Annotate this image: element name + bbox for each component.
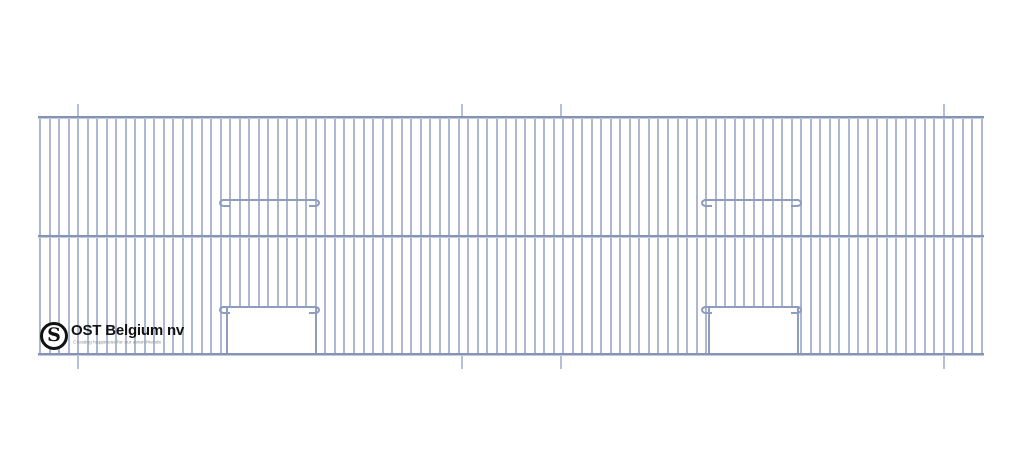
door-hook-wire bbox=[704, 306, 799, 308]
fold-mark-bottom bbox=[461, 356, 463, 369]
door-hook-right-curl bbox=[791, 306, 802, 314]
door-hook-wire bbox=[222, 199, 317, 201]
door-hook-left-curl bbox=[219, 306, 230, 314]
logo-monogram: S bbox=[47, 326, 61, 345]
company-logo: S OST Belgium nv Creating happiness for … bbox=[40, 322, 215, 350]
logo-monogram-ring: S bbox=[40, 322, 68, 350]
fold-mark-top bbox=[943, 104, 945, 116]
fold-mark-bottom bbox=[943, 356, 945, 369]
fold-mark-bottom bbox=[560, 356, 562, 369]
door-hook-right-curl bbox=[309, 306, 320, 314]
drawing-page: S OST Belgium nv Creating happiness for … bbox=[0, 0, 1024, 473]
door-opening bbox=[229, 308, 314, 353]
door-hook-left-curl bbox=[701, 199, 712, 207]
fold-mark-top bbox=[560, 104, 562, 116]
fold-mark-top bbox=[461, 104, 463, 116]
door-hook-right-curl bbox=[791, 199, 802, 207]
door-hook-right-curl bbox=[309, 199, 320, 207]
door-hook-wire bbox=[704, 199, 799, 201]
middle-rail bbox=[38, 235, 984, 238]
bottom-rail bbox=[38, 353, 984, 356]
door-hook-left-curl bbox=[701, 306, 712, 314]
fold-mark-top bbox=[77, 104, 79, 116]
top-rail bbox=[38, 116, 984, 119]
door-hook-wire bbox=[222, 306, 317, 308]
fold-mark-bottom bbox=[77, 356, 79, 369]
company-tagline: Creating happiness for our avian friends bbox=[73, 340, 161, 345]
logo-text-block: OST Belgium nv Creating happiness for ou… bbox=[71, 322, 215, 348]
door-opening bbox=[711, 308, 796, 353]
wire-grid-layer bbox=[0, 0, 1024, 473]
door-hook-left-curl bbox=[219, 199, 230, 207]
company-name: OST Belgium nv bbox=[71, 323, 215, 339]
